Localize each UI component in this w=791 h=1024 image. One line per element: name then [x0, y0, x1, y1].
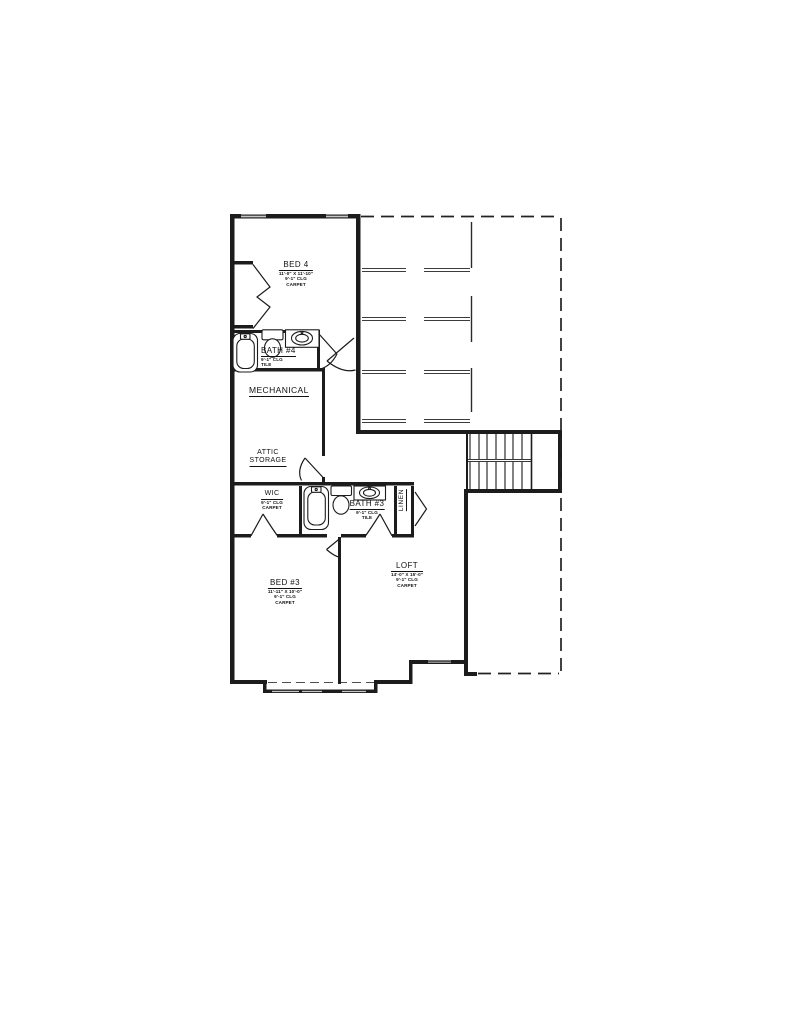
room-label-bath3: BATH #3 9'-1" CLG TILE [350, 499, 385, 521]
floor-plan-canvas [0, 0, 791, 1024]
toilet-icon [331, 486, 352, 514]
room-label-bed4: BED 4 11'-0" X 11'-10" 9'-1" CLG CARPET [279, 260, 313, 287]
room-name: LOFT [391, 561, 423, 572]
floor-plan: BED 4 11'-0" X 11'-10" 9'-1" CLG CARPET … [0, 0, 791, 1024]
room-label-attic-storage: ATTIC STORAGE [250, 449, 287, 467]
room-floor: CARPET [279, 282, 313, 288]
room-label-bed3: BED #3 11'-11" X 10'-0" 9'-1" CLG CARPET [268, 578, 302, 605]
room-label-loft: LOFT 14'-0" X 15'-0" 9'-1" CLG CARPET [391, 561, 423, 588]
room-floor: TILE [261, 362, 296, 368]
sink-icon [286, 330, 320, 348]
room-floor: CARPET [261, 505, 283, 511]
linen-door-icon [415, 492, 427, 526]
sink-icon [354, 486, 386, 500]
room-name-line2: STORAGE [250, 457, 287, 467]
room-name: BED 4 [279, 260, 313, 271]
room-name: WIC [261, 490, 283, 500]
room-name: BED #3 [268, 578, 302, 589]
room-name: BATH #4 [261, 346, 296, 357]
bath4-door-icon [318, 334, 337, 370]
staircase [467, 434, 532, 489]
room-name: LINEN [398, 489, 407, 511]
room-name: MECHANICAL [249, 386, 309, 397]
wic-door-icon [251, 514, 278, 536]
room-floor: TILE [350, 515, 385, 521]
room-label-wic: WIC 9'-1" CLG CARPET [261, 490, 283, 511]
room-floor: CARPET [391, 583, 423, 589]
room-label-bath4: BATH #4 9'-1" CLG TILE [261, 346, 296, 368]
bed4-door-icon [327, 338, 356, 371]
room-floor: CARPET [268, 600, 302, 606]
room-name: BATH #3 [350, 499, 385, 510]
room-name-line1: ATTIC [250, 449, 287, 457]
room-label-mechanical: MECHANICAL [249, 380, 309, 398]
bed4-closet-bifold-icon [253, 265, 270, 329]
interior-walls [230, 261, 414, 684]
attic-storage-door-icon [300, 458, 324, 481]
room-label-linen: LINEN [398, 489, 407, 516]
bathtub-icon [304, 487, 329, 530]
ceiling-joist-lines [362, 222, 472, 423]
bathtub-icon [233, 334, 258, 373]
